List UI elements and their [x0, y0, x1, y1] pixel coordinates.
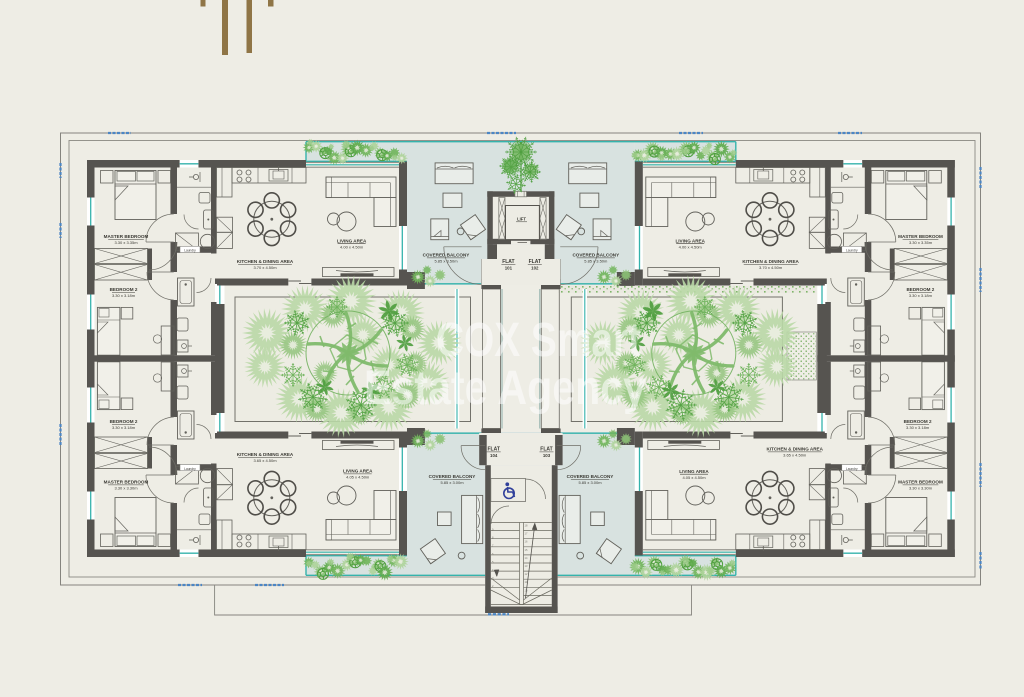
- svg-text:103: 103: [543, 453, 551, 458]
- svg-text:5.85 x 3.50m: 5.85 x 3.50m: [584, 259, 608, 264]
- svg-text:COVERED BALCONY: COVERED BALCONY: [567, 474, 614, 479]
- svg-text:3.65 x 4.50m: 3.65 x 4.50m: [783, 453, 807, 458]
- svg-text:LIVING AREA: LIVING AREA: [337, 238, 367, 243]
- svg-text:Laundry: Laundry: [184, 467, 196, 471]
- svg-text:COVERED BALCONY: COVERED BALCONY: [429, 474, 476, 479]
- svg-text:COVERED BALCONY: COVERED BALCONY: [572, 253, 619, 258]
- svg-text:MASTER BEDROOM: MASTER BEDROOM: [104, 480, 149, 485]
- svg-text:KITCHEN & DINING AREA: KITCHEN & DINING AREA: [237, 452, 294, 457]
- svg-text:102: 102: [531, 266, 539, 271]
- svg-text:3.30 x 3.18m: 3.30 x 3.18m: [112, 425, 136, 430]
- svg-text:FLAT: FLAT: [487, 447, 499, 453]
- svg-text:3.65 x 4.50m: 3.65 x 4.50m: [253, 458, 277, 463]
- svg-text:5.85 x 3.00m: 5.85 x 3.00m: [440, 480, 464, 485]
- svg-text:5.85 x 3.50m: 5.85 x 3.50m: [434, 259, 458, 264]
- svg-text:4.05 x 4.50m: 4.05 x 4.50m: [346, 475, 370, 480]
- svg-text:LIVING AREA: LIVING AREA: [343, 469, 373, 474]
- svg-text:3.30 x 3.30m: 3.30 x 3.30m: [114, 486, 138, 491]
- svg-text:3.70 x 4.50m: 3.70 x 4.50m: [253, 265, 277, 270]
- svg-text:3.30 x 3.35m: 3.30 x 3.35m: [909, 240, 933, 245]
- svg-text:3.30 x 3.18m: 3.30 x 3.18m: [906, 425, 930, 430]
- svg-text:3.30 x 3.30m: 3.30 x 3.30m: [909, 486, 933, 491]
- svg-text:101: 101: [505, 266, 513, 271]
- svg-text:LIVING AREA: LIVING AREA: [679, 469, 709, 474]
- svg-text:104: 104: [490, 453, 498, 458]
- svg-text:Estate Agency: Estate Agency: [364, 362, 646, 415]
- svg-text:BEDROOM 2: BEDROOM 2: [904, 419, 932, 424]
- svg-text:LIVING AREA: LIVING AREA: [675, 238, 705, 243]
- svg-text:3.70 x 4.50m: 3.70 x 4.50m: [759, 265, 783, 270]
- svg-text:5.85 x 3.00m: 5.85 x 3.00m: [578, 480, 602, 485]
- svg-text:MASTER BEDROOM: MASTER BEDROOM: [898, 234, 943, 239]
- svg-text:BEDROOM 2: BEDROOM 2: [906, 287, 934, 292]
- svg-text:COVERED BALCONY: COVERED BALCONY: [423, 253, 470, 258]
- svg-text:MASTER BEDROOM: MASTER BEDROOM: [898, 480, 943, 485]
- svg-text:KITCHEN & DINING AREA: KITCHEN & DINING AREA: [766, 447, 823, 452]
- svg-text:Laundry: Laundry: [184, 248, 196, 252]
- svg-text:FLAT: FLAT: [540, 447, 552, 453]
- svg-text:BEDROOM 2: BEDROOM 2: [110, 419, 138, 424]
- svg-text:3.30 x 3.18m: 3.30 x 3.18m: [909, 293, 933, 298]
- svg-text:4.05 x 4.50m: 4.05 x 4.50m: [682, 475, 706, 480]
- svg-text:COX Smart: COX Smart: [436, 314, 641, 367]
- svg-text:LIFT: LIFT: [517, 217, 526, 222]
- svg-text:FLAT: FLAT: [502, 259, 514, 265]
- svg-text:BEDROOM 2: BEDROOM 2: [110, 287, 138, 292]
- svg-text:FLAT: FLAT: [529, 259, 541, 265]
- svg-text:4.00 x 4.50m: 4.00 x 4.50m: [679, 245, 703, 250]
- svg-text:MASTER BEDROOM: MASTER BEDROOM: [104, 234, 149, 239]
- svg-text:3.30 x 3.35m: 3.30 x 3.35m: [114, 240, 138, 245]
- svg-text:KITCHEN & DINING AREA: KITCHEN & DINING AREA: [742, 259, 799, 264]
- svg-text:Laundry: Laundry: [846, 467, 858, 471]
- svg-text:Laundry: Laundry: [846, 248, 858, 252]
- svg-text:3.30 x 3.18m: 3.30 x 3.18m: [112, 293, 136, 298]
- svg-text:KITCHEN & DINING AREA: KITCHEN & DINING AREA: [237, 259, 294, 264]
- svg-text:4.00 x 4.50m: 4.00 x 4.50m: [340, 245, 364, 250]
